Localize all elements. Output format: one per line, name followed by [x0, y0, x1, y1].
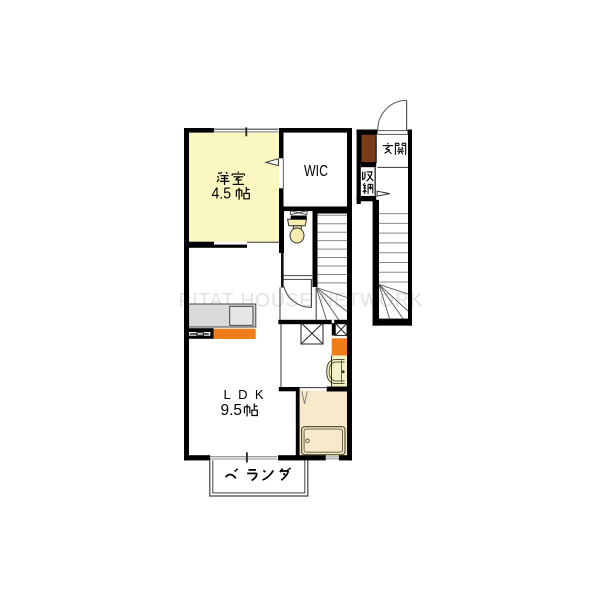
svg-text:LDK: LDK: [224, 387, 272, 402]
svg-text:4.5: 4.5: [212, 186, 232, 203]
svg-text:WIC: WIC: [304, 163, 328, 180]
svg-text:9.5: 9.5: [221, 402, 243, 419]
